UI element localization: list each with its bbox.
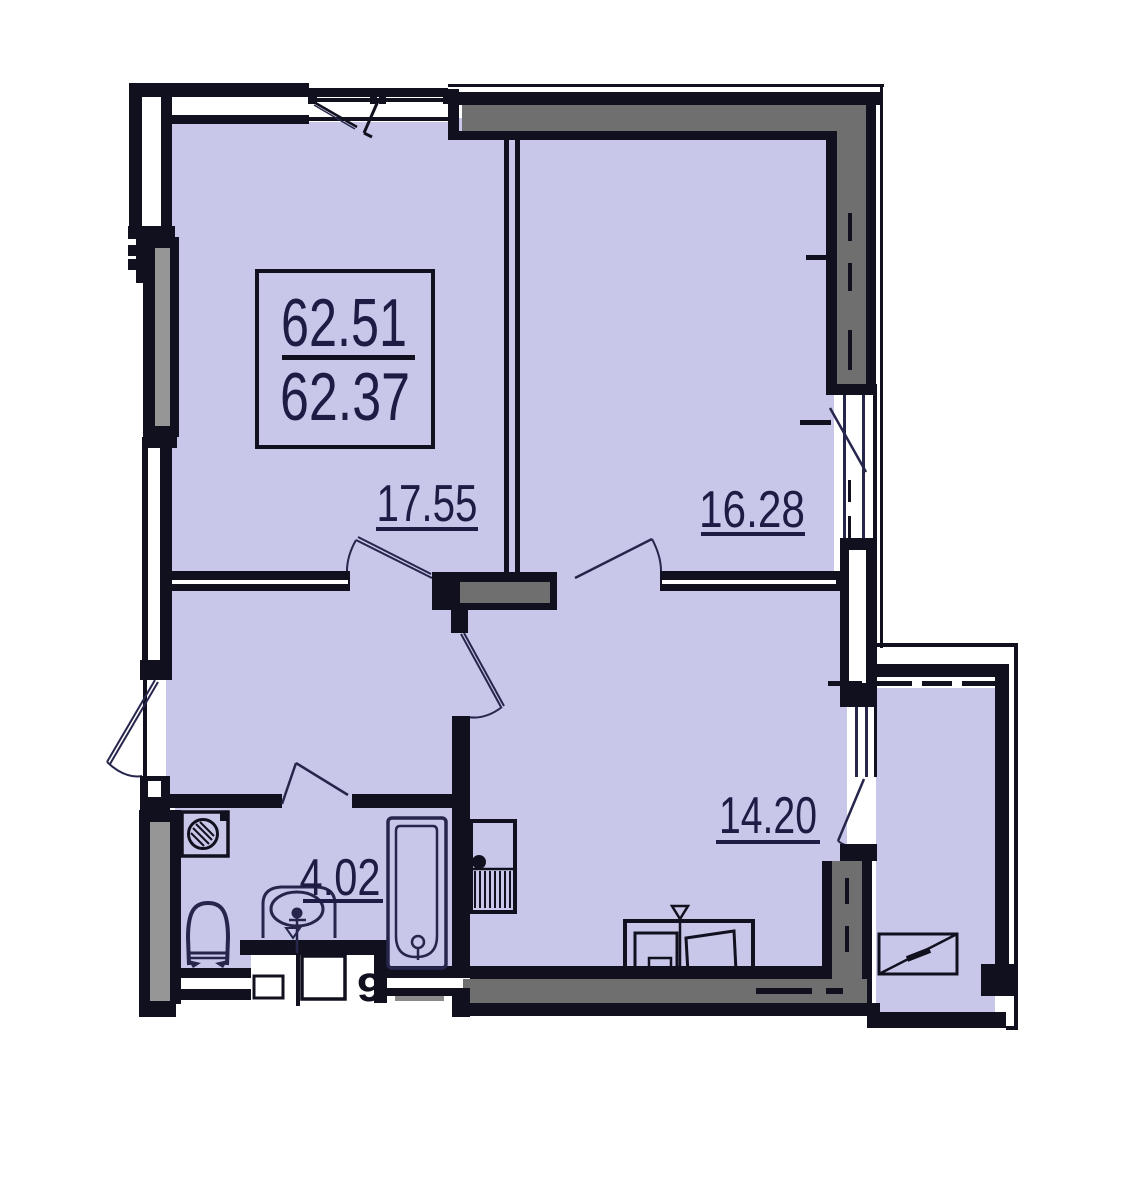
- svg-text:16.28: 16.28: [699, 481, 805, 539]
- svg-text:62.37: 62.37: [280, 359, 410, 435]
- svg-text:62.51: 62.51: [281, 285, 407, 361]
- svg-text:4.02: 4.02: [300, 849, 381, 907]
- svg-text:9: 9: [357, 966, 383, 1010]
- svg-text:14.20: 14.20: [719, 787, 817, 845]
- svg-text:17.55: 17.55: [377, 475, 478, 533]
